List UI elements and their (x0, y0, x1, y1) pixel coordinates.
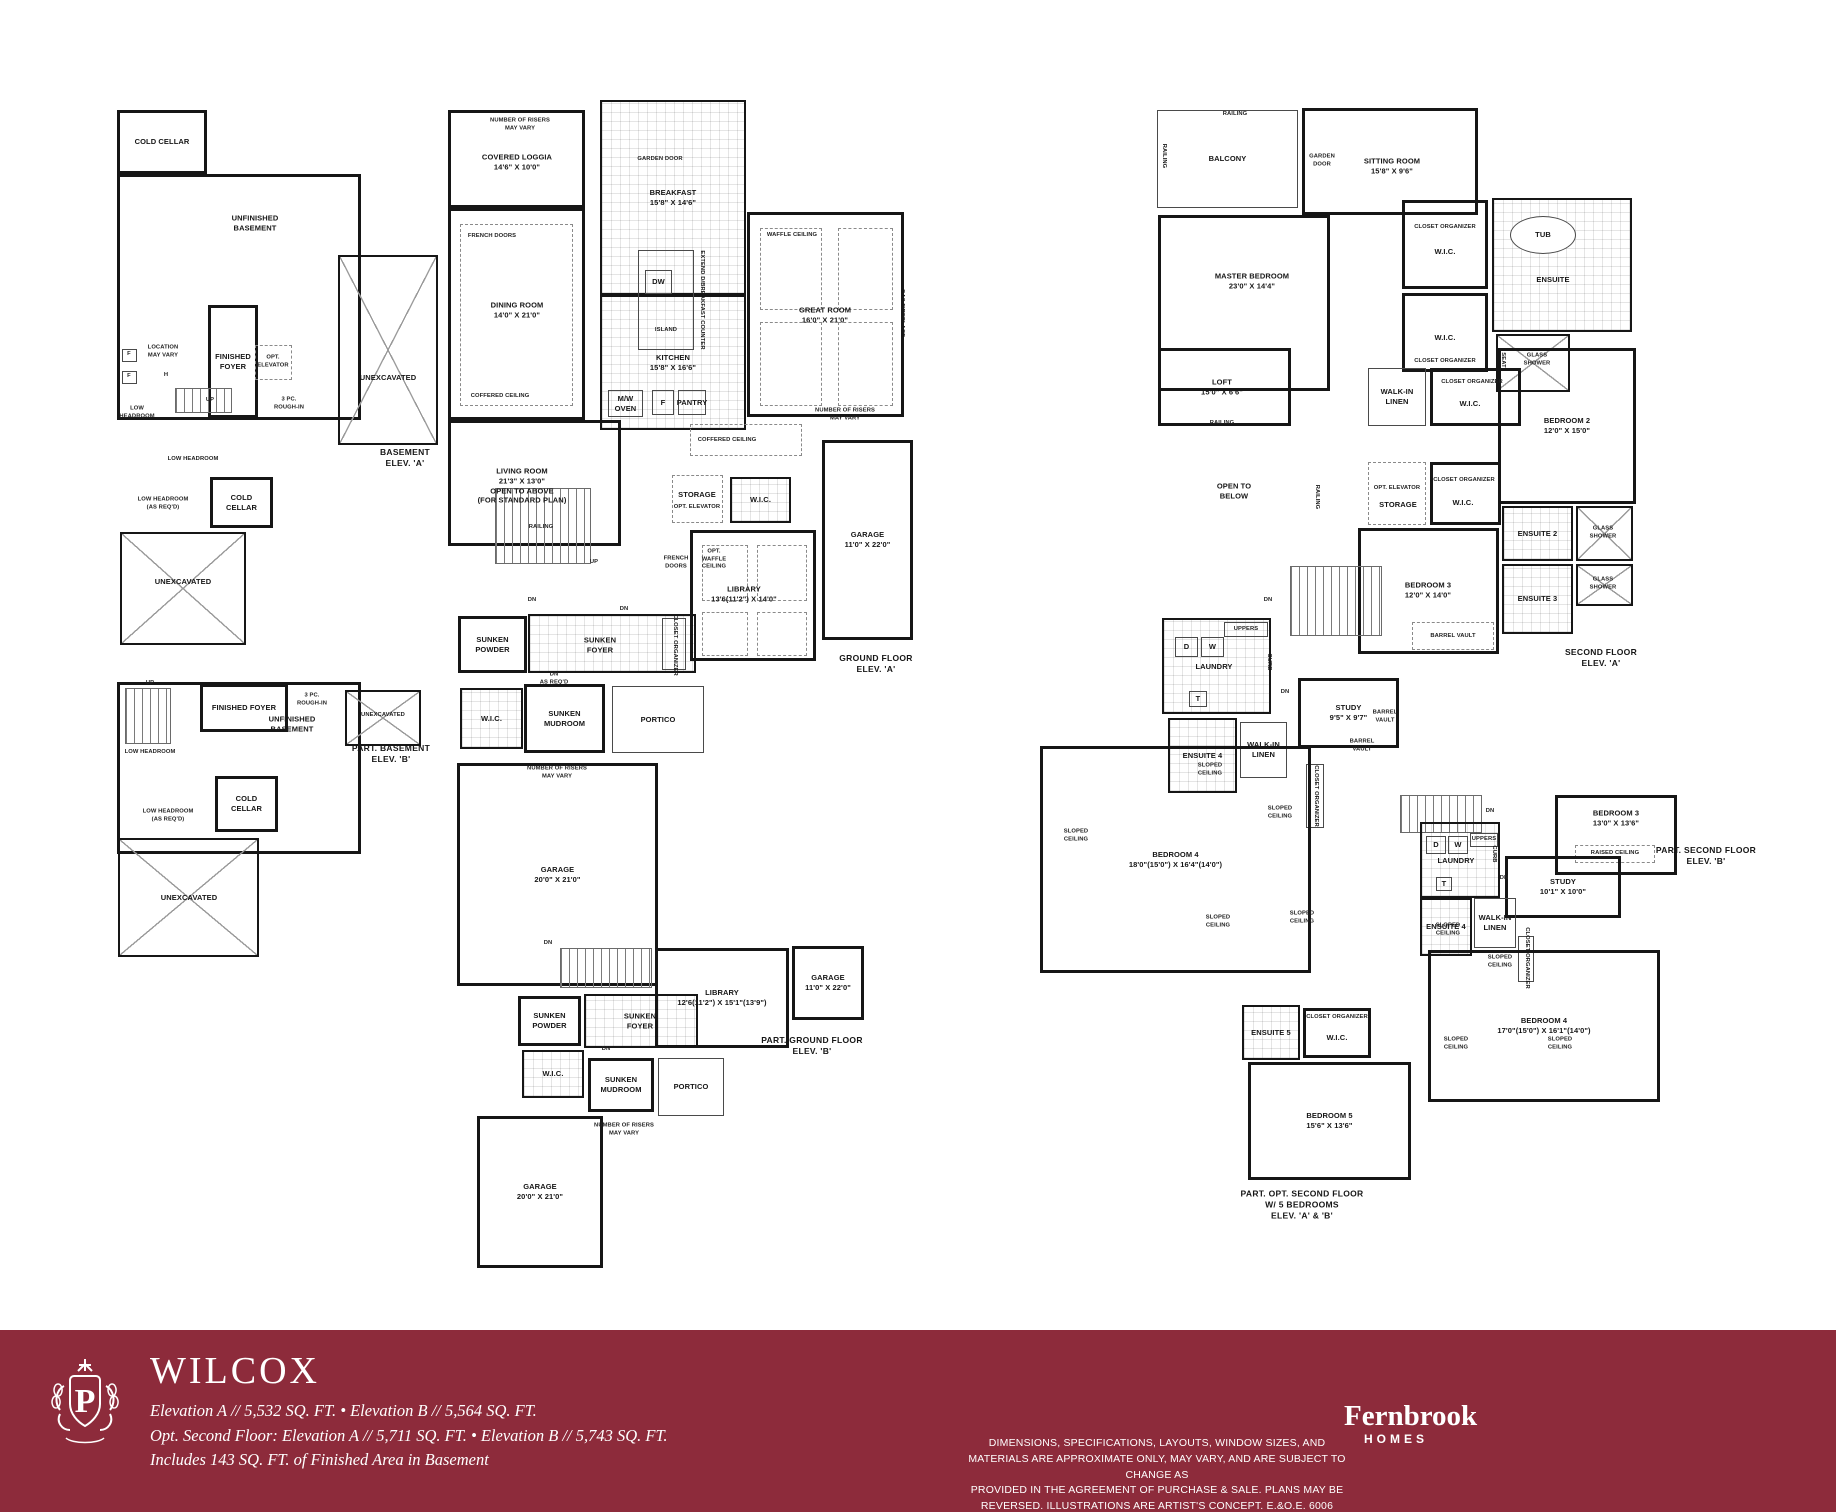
plan-label-opt-elevator: OPT. ELEVATOR (1374, 485, 1420, 493)
plan-label-loft: LOFT 15'0" X 6'6" (1201, 377, 1243, 397)
plan-label-dn: DN (602, 1046, 611, 1054)
plan-label-storage: STORAGE (678, 490, 716, 500)
plan-label-location: LOCATION MAY VARY (148, 344, 179, 359)
disclaimer-line-2: PROVIDED IN THE AGREEMENT OF PURCHASE & … (963, 1483, 1351, 1512)
plan-label-glass: GLASS SHOWER (1590, 576, 1617, 591)
plan-label-number-of-risers: NUMBER OF RISERS MAY VARY (815, 407, 875, 422)
plan-label-uppers: UPPERS (1234, 626, 1258, 634)
model-name: WILCOX (150, 1352, 668, 1392)
plan-label-dn: DN (544, 940, 553, 948)
plan-label-closet-organizer: CLOSET ORGANIZER (1414, 358, 1476, 366)
plan-caption-part-opt-second-floor-5-bedrooms: PART. OPT. SECOND FLOOR W/ 5 BEDROOMS EL… (1241, 1188, 1364, 1221)
plan-label-uppers: UPPERS (1472, 836, 1496, 844)
plan-label-up: UP (146, 680, 154, 688)
plan-label-closet-organizer: CLOSET ORGANIZER (1522, 927, 1530, 989)
plan-label-library: LIBRARY 13'6(11'2") X 14'0" (711, 584, 777, 604)
plan-label-sloped: SLOPED CEILING (1206, 914, 1230, 929)
plan-label-w-i-c: W.I.C. (1434, 333, 1455, 343)
plan-label-gas-fireplace: GAS FIREPLACE (897, 289, 905, 337)
plan-label-railing: RAILING (1312, 485, 1320, 510)
plan-label-bedroom-3: BEDROOM 3 13'0" X 13'6" (1593, 808, 1639, 828)
plan-caption-ground-floor-elev-a: GROUND FLOOR ELEV. 'A' (839, 653, 912, 675)
plan-label-railing: RAILING (1210, 420, 1235, 428)
plan-label-laundry: LAUNDRY (1195, 662, 1232, 672)
plan-label-dn: DN (1486, 808, 1495, 816)
plan-caption-part-second-floor-elev-b: PART. SECOND FLOOR ELEV. 'B' (1656, 845, 1756, 867)
plan-label-3-pc: 3 PC. ROUGH-IN (297, 692, 327, 707)
crest-letter: P (75, 1383, 96, 1420)
plan-label-unfinished: UNFINISHED BASEMENT (269, 714, 316, 734)
plan-label-unexcavated: UNEXCAVATED (161, 893, 218, 903)
plan-label-laundry: LAUNDRY (1437, 856, 1474, 866)
legal-disclaimer: DIMENSIONS, SPECIFICATIONS, LAYOUTS, WIN… (963, 1436, 1351, 1512)
plan-label-sitting-room: SITTING ROOM 15'8" X 9'6" (1364, 156, 1420, 176)
plan-caption-part-ground-floor-elev-b: PART. GROUND FLOOR ELEV. 'B' (761, 1035, 863, 1057)
plan-label-sunken: SUNKEN FOYER (624, 1011, 656, 1031)
plan-label-low-headroom: LOW HEADROOM (168, 456, 219, 464)
plan-label-number-of-risers: NUMBER OF RISERS MAY VARY (490, 117, 550, 132)
plan-label-barrel: BARREL VAULT (1373, 709, 1398, 724)
plan-label-raised-ceiling: RAISED CEILING (1591, 850, 1639, 858)
plan-label-w-i-c: W.I.C. (1452, 498, 1473, 508)
plan-label-opt: OPT. ELEVATOR (257, 354, 288, 369)
room-ensuite-5: ENSUITE 5 (1242, 1005, 1300, 1060)
plan-label-railing: RAILING (1159, 144, 1167, 169)
spec-line-elevations: Elevation A // 5,532 SQ. FT. • Elevation… (150, 1401, 668, 1422)
plan-label-sloped: SLOPED CEILING (1444, 1036, 1468, 1051)
plan-label-f: F (127, 351, 131, 359)
plan-label-bedroom-3: BEDROOM 3 12'0" X 14'0" (1405, 580, 1451, 600)
floor-plans-layer: COLD CELLARFINISHED FOYERCOLD CELLARUNFI… (0, 0, 1836, 1332)
room-label: ENSUITE 5 (1244, 1007, 1298, 1058)
plan-label-extend-d-breakfast-counter: EXTEND D/BREAKFAST COUNTER (697, 250, 705, 349)
plan-label-glass: GLASS SHOWER (1524, 352, 1551, 367)
plan-label-sunken: SUNKEN FOYER (584, 635, 616, 655)
plan-label-railing: RAILING (529, 524, 554, 532)
plan-label-unfinished: UNFINISHED BASEMENT (232, 213, 279, 233)
plan-label-w-i-c: W.I.C. (1434, 247, 1455, 257)
builder-crest-icon: P (48, 1356, 122, 1460)
plan-label-waffle-ceiling: WAFFLE CEILING (767, 232, 817, 240)
plan-label-barrel-vault: BARREL VAULT (1430, 633, 1475, 641)
plan-label-opt: OPT. WAFFLE CEILING (702, 549, 726, 572)
plan-label-seat: SEAT (1498, 352, 1506, 367)
plan-label-up: UP (590, 559, 598, 567)
plan-label-garden-door: GARDEN DOOR (637, 156, 682, 164)
plan-label-island: ISLAND (655, 327, 677, 335)
plan-label-w-i-c: W.I.C. (1459, 399, 1480, 409)
plan-label-closet-organizer: CLOSET ORGANIZER (1414, 224, 1476, 232)
plan-label-unexcavated: UNEXCAVATED (155, 577, 212, 587)
brand-name: Fernbrook (1344, 1402, 1448, 1431)
disclaimer-line-1: DIMENSIONS, SPECIFICATIONS, LAYOUTS, WIN… (963, 1436, 1351, 1483)
plan-label-dn: DN (620, 606, 629, 614)
plan-label-french-doors: FRENCH DOORS (468, 233, 516, 241)
plan-label-open-to: OPEN TO BELOW (1217, 481, 1251, 501)
plan-label-great-room: GREAT ROOM 16'0" X 21'0" (799, 305, 851, 325)
plan-label-covered-loggia: COVERED LOGGIA 14'6" X 10'0" (482, 152, 552, 172)
spec-line-basement-area: Includes 143 SQ. FT. of Finished Area in… (150, 1450, 668, 1471)
plan-label-sloped: SLOPED CEILING (1290, 910, 1314, 925)
plan-label-living-room: LIVING ROOM 21'3" X 13'0" OPEN TO ABOVE … (478, 467, 567, 506)
plan-label-h: H (164, 372, 168, 380)
plan-label-garden: GARDEN DOOR (1309, 153, 1335, 168)
plan-label-3-pc: 3 PC. ROUGH-IN (274, 396, 304, 411)
model-info-block: WILCOX Elevation A // 5,532 SQ. FT. • El… (150, 1352, 668, 1471)
plan-label-unexcavated: UNEXCAVATED (361, 712, 405, 720)
plan-label-low-headroom: LOW HEADROOM (AS REQ'D) (143, 808, 194, 823)
room-bedroom-5: BEDROOM 5 15'6" X 13'6" (1248, 1062, 1411, 1180)
plan-label-sloped: SLOPED CEILING (1198, 762, 1222, 777)
plan-label-coffered-ceiling: COFFERED CEILING (471, 393, 530, 401)
plan-label-coffered-ceiling: COFFERED CEILING (698, 437, 757, 445)
plan-label-opt-elevator: OPT. ELEVATOR (674, 504, 720, 512)
plan-label-dn: DN (1281, 689, 1290, 697)
plan-label-barrel: BARREL VAULT (1350, 738, 1375, 753)
plan-caption-part-basement-elev-b: PART. BASEMENT ELEV. 'B' (352, 743, 430, 765)
plan-label-closet-organizer: CLOSET ORGANIZER (1441, 379, 1503, 387)
plan-label-glass: GLASS SHOWER (1590, 525, 1617, 540)
plan-part-opt-second-floor-5-bedrooms: ENSUITE 5BEDROOM 5 15'6" X 13'6"CLOSET O… (0, 0, 1836, 1332)
plan-label-low-headroom: LOW HEADROOM (AS REQ'D) (138, 496, 189, 511)
brochure-sheet: COLD CELLARFINISHED FOYERCOLD CELLARUNFI… (0, 0, 1836, 1512)
plan-label-sloped: SLOPED CEILING (1488, 954, 1512, 969)
plan-label-unexcavated: UNEXCAVATED (360, 373, 417, 383)
plan-label-sloped: SLOPED CEILING (1268, 805, 1292, 820)
plan-label-sloped: SLOPED CEILING (1548, 1036, 1572, 1051)
plan-caption-basement-elev-a: BASEMENT ELEV. 'A' (380, 447, 430, 469)
plan-label-low: LOW HEADROOM (119, 405, 154, 420)
plan-label-curb: CURB (1489, 845, 1497, 862)
fernbrook-homes-logo: Fernbrook HOMES (1344, 1402, 1448, 1446)
plan-caption-second-floor-elev-a: SECOND FLOOR ELEV. 'A' (1565, 647, 1637, 669)
plan-label-number-of-risers: NUMBER OF RISERS MAY VARY (527, 765, 587, 780)
plan-label-dn: DN (1500, 875, 1509, 883)
plan-label-f: F (127, 373, 131, 381)
plan-label-sloped: SLOPED CEILING (1064, 828, 1088, 843)
plan-label-up: UP (206, 397, 214, 405)
plan-label-storage: STORAGE (1379, 500, 1417, 510)
footer-banner: P WILCOX Elevation A // 5,532 SQ. FT. • … (0, 1330, 1836, 1512)
brand-sub: HOMES (1344, 1432, 1448, 1446)
room-label: BEDROOM 5 15'6" X 13'6" (1251, 1065, 1408, 1177)
plan-label-number-of-risers: NUMBER OF RISERS MAY VARY (594, 1122, 654, 1137)
plan-label-w-i-c: W.I.C. (1326, 1033, 1347, 1043)
plan-label-dn: DN (1264, 597, 1273, 605)
plan-label-closet-organizer: CLOSET ORGANIZER (1311, 765, 1319, 827)
plan-label-railing: RAILING (1223, 111, 1248, 119)
plan-label-ensuite: ENSUITE (1536, 275, 1569, 285)
plan-label-low-headroom: LOW HEADROOM (125, 749, 176, 757)
plan-label-closet-organizer: CLOSET ORGANIZER (670, 614, 678, 676)
plan-label-master-bedroom: MASTER BEDROOM 23'0" X 14'4" (1215, 271, 1289, 291)
plan-label-dn: DN (528, 597, 537, 605)
plan-label-french: FRENCH DOORS (664, 555, 689, 570)
plan-label-closet-organizer: CLOSET ORGANIZER (1306, 1014, 1368, 1022)
plan-label-dining-room: DINING ROOM 14'0" X 21'0" (491, 300, 544, 320)
plan-label-sloped: SLOPED CEILING (1436, 922, 1460, 937)
spec-line-opt-second-floor: Opt. Second Floor: Elevation A // 5,711 … (150, 1426, 668, 1447)
plan-label-dn: DN AS REQ'D (540, 671, 569, 686)
plan-label-curb: CURB (1264, 653, 1272, 670)
plan-label-closet-organizer: CLOSET ORGANIZER (1433, 477, 1495, 485)
